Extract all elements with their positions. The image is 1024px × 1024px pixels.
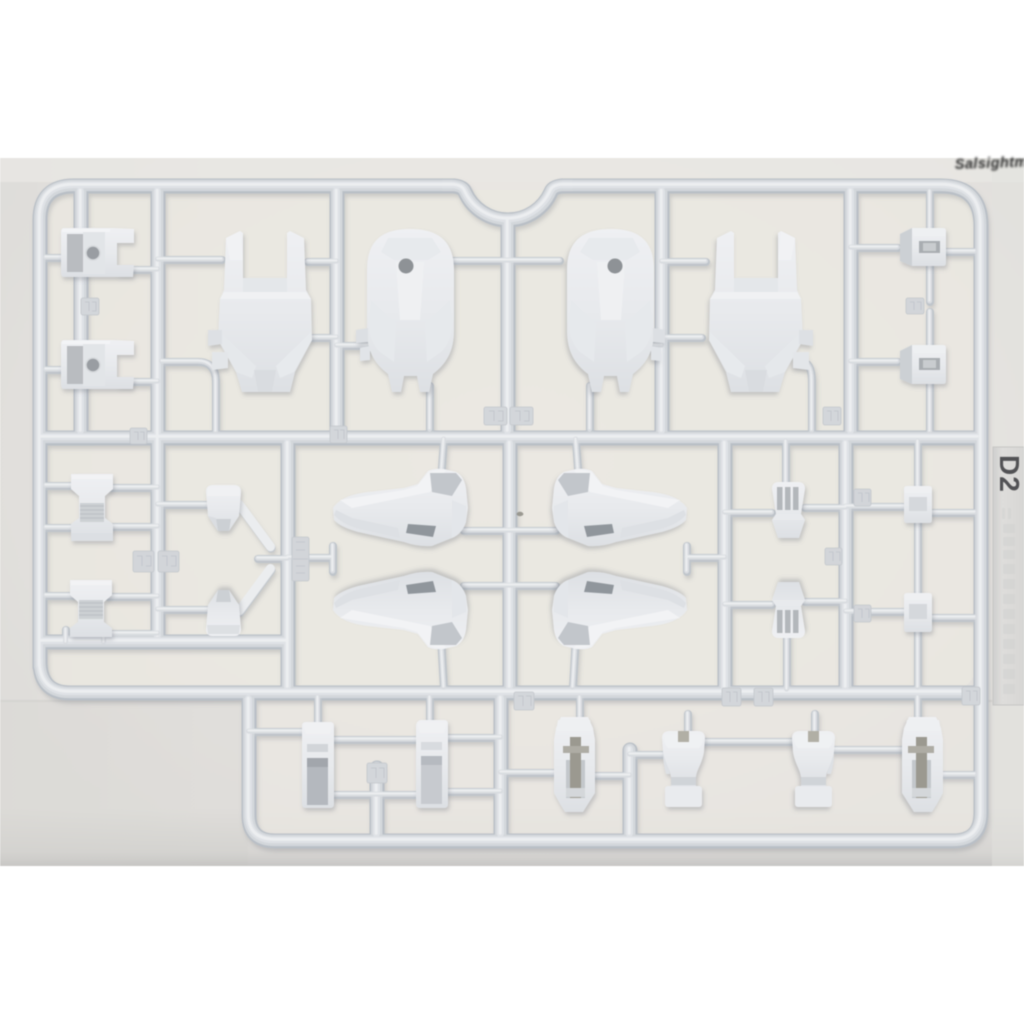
svg-text:D2: D2 [994, 455, 1024, 493]
svg-text:Salsightm: Salsightm [955, 154, 1024, 173]
